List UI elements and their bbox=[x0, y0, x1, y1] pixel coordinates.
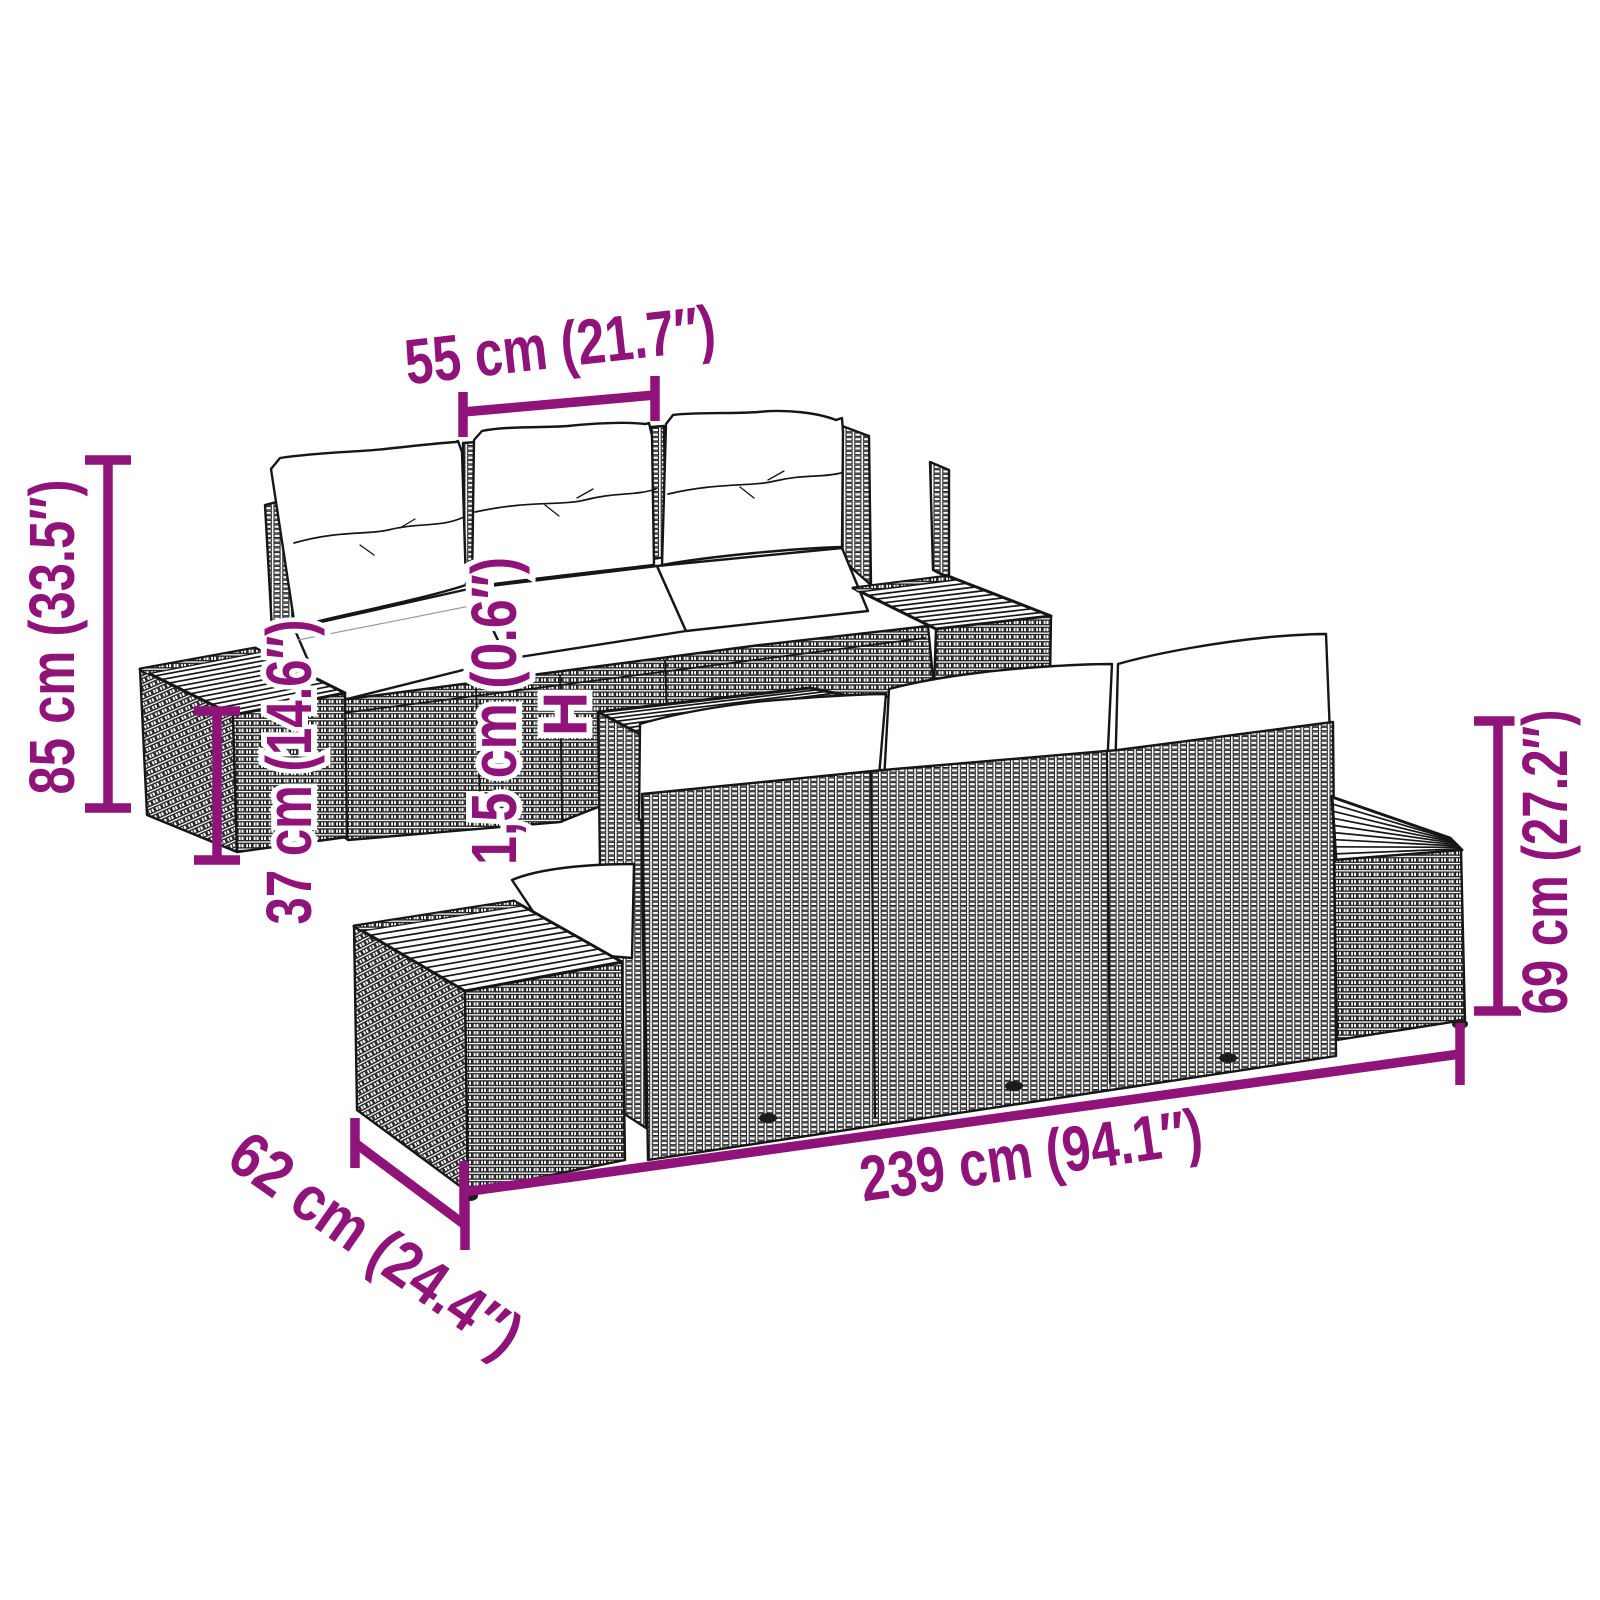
svg-text:69 cm (27.2″): 69 cm (27.2″) bbox=[1509, 710, 1581, 1015]
svg-text:37 cm (14.6″): 37 cm (14.6″) bbox=[253, 620, 325, 925]
svg-text:H: H bbox=[532, 692, 601, 737]
svg-text:85 cm (33.5″): 85 cm (33.5″) bbox=[16, 480, 88, 795]
svg-text:1,5 cm (0.6″): 1,5 cm (0.6″) bbox=[458, 557, 530, 865]
